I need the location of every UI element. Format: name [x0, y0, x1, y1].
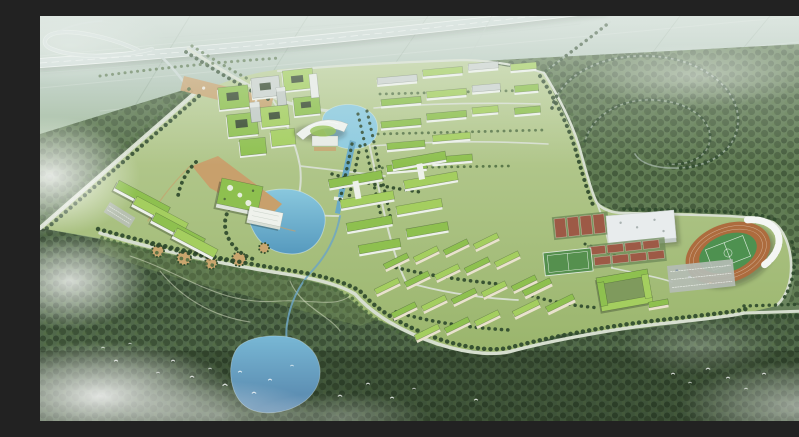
- aerial-rendering: [40, 16, 799, 421]
- practice-field: [543, 248, 593, 276]
- atmospheric-haze: [40, 16, 799, 166]
- rendering-canvas: [40, 16, 799, 421]
